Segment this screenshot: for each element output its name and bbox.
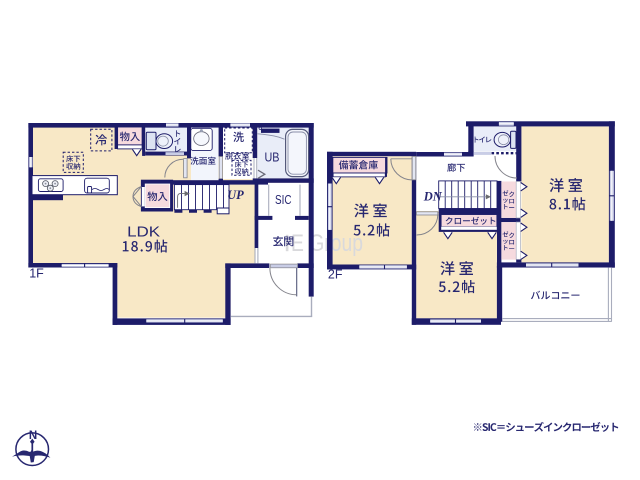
svg-text:DN: DN xyxy=(423,190,443,204)
svg-text:1F: 1F xyxy=(29,267,44,281)
svg-text:UB: UB xyxy=(265,150,280,165)
svg-text:UP: UP xyxy=(227,188,244,202)
svg-text:2F: 2F xyxy=(328,267,343,281)
svg-text:LDK: LDK xyxy=(127,225,161,241)
svg-text:SIC: SIC xyxy=(275,192,292,207)
